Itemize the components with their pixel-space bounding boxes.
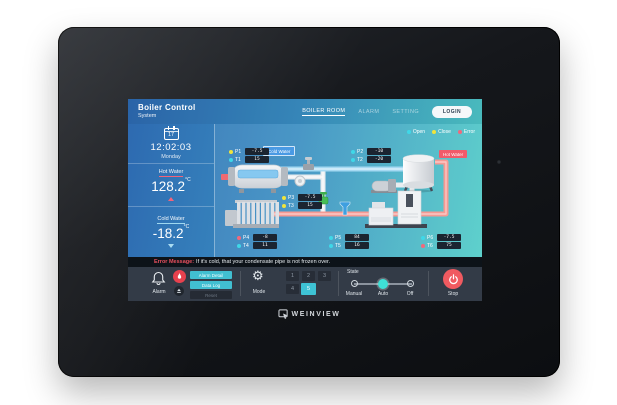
sensor-t1: T1 15	[229, 156, 269, 163]
clock-panel: 17 12:02:03 Monday	[128, 124, 214, 164]
sensor-t6: T6 75	[421, 242, 461, 249]
status-dot	[237, 236, 241, 240]
error-message-bar: Error Message: If it's cold, that your c…	[128, 257, 482, 267]
status-dot	[329, 244, 333, 248]
nav: BOILER ROOM ALARM SETTING LOGIN	[302, 106, 472, 118]
sensor-p4: P4 -8	[237, 234, 277, 241]
sensor-t4: T4 11	[237, 242, 277, 249]
mode-button-4[interactable]: 4	[286, 284, 299, 294]
sidebar: 17 12:02:03 Monday Hot Water 128.2°C Col…	[128, 124, 214, 257]
alarm-detail-button[interactable]: Alarm Detail	[190, 271, 232, 279]
brand-logo: WEINVIEW	[58, 309, 560, 319]
state-knob-manual[interactable]	[351, 280, 358, 287]
page: Boiler Control System BOILER ROOM ALARM …	[0, 0, 617, 405]
mode-button-3[interactable]: 3	[318, 271, 331, 281]
sensor-value: 16	[345, 242, 369, 249]
hmi-panel-device: Boiler Control System BOILER ROOM ALARM …	[58, 27, 560, 377]
heat-exchanger	[221, 165, 288, 193]
sensor-value: -7.5	[437, 234, 461, 241]
state-option-auto[interactable]: Auto	[374, 291, 392, 297]
alarm-label: Alarm	[145, 289, 173, 295]
fire-alarm-button[interactable]	[173, 270, 186, 283]
sensor-t2: T2 -20	[351, 156, 391, 163]
top-bar: Boiler Control System BOILER ROOM ALARM …	[128, 99, 482, 124]
cold-water-unit: °C	[184, 224, 190, 230]
sensor-t5: T5 16	[329, 242, 369, 249]
hot-water-panel: Hot Water 128.2°C	[128, 164, 214, 207]
brand-name: WEINVIEW	[292, 311, 341, 318]
divider	[240, 271, 241, 296]
sensor-value: -7.5	[245, 148, 269, 155]
bell-icon	[151, 271, 166, 285]
divider	[338, 271, 339, 296]
page-subtitle: System	[138, 113, 196, 119]
control-bar: Alarm Alarm Detail Data Log Reset	[128, 267, 482, 301]
power-icon	[448, 274, 459, 285]
sensor-value: 15	[298, 202, 322, 209]
open-dot-icon	[407, 130, 411, 134]
state-knob-off[interactable]	[407, 280, 414, 287]
divider	[428, 271, 429, 296]
hot-water-tag: Hot Water	[439, 150, 467, 158]
calendar-icon: 17	[164, 128, 179, 140]
hot-water-unit: °C	[185, 177, 191, 183]
sensor-value: 84	[345, 234, 369, 241]
clock-time: 12:02:03	[151, 142, 192, 153]
flame-icon	[176, 272, 183, 281]
status-dot	[421, 236, 425, 240]
pump-unit	[371, 179, 397, 193]
boiler-diagram: Open Close Error	[214, 124, 482, 257]
status-dot	[351, 158, 355, 162]
status-dot	[421, 244, 425, 248]
legend-error: Error	[458, 129, 475, 135]
hmi-screen: Boiler Control System BOILER ROOM ALARM …	[128, 99, 482, 301]
status-dot	[329, 236, 333, 240]
sensor-value: 15	[245, 156, 269, 163]
camera-dot	[497, 160, 501, 164]
sensor-value: -20	[367, 156, 391, 163]
sensor-p2: P2 -10	[351, 148, 391, 155]
hot-water-label: Hot Water	[159, 169, 184, 177]
stop-button[interactable]	[443, 269, 463, 289]
title-block: Boiler Control System	[138, 104, 196, 119]
login-button[interactable]: LOGIN	[432, 106, 472, 118]
status-legend: Open Close Error	[407, 129, 475, 135]
mode-label: Mode	[248, 289, 270, 295]
tab-boiler-room[interactable]: BOILER ROOM	[302, 108, 345, 116]
user-reset-button[interactable]	[174, 286, 184, 296]
close-dot-icon	[432, 130, 436, 134]
sensor-t3: T3 15	[282, 202, 322, 209]
status-dot	[282, 196, 286, 200]
temp-rising-icon	[168, 197, 174, 201]
legend-close: Close	[432, 129, 451, 135]
cold-water-panel: Cold Water -18.2°C	[128, 207, 214, 257]
mode-button-5[interactable]: 5	[301, 283, 316, 295]
boiler-unit	[225, 200, 279, 228]
reset-button[interactable]: Reset	[190, 291, 232, 299]
error-message: If it's cold, that your condensate pipe …	[196, 259, 330, 265]
grey-valve-icon	[303, 157, 314, 170]
calendar-day: 17	[168, 131, 174, 139]
sensor-p6: P6 -7.5	[421, 234, 461, 241]
sensor-value: 11	[253, 242, 277, 249]
sensor-p3: P3 -7.5	[282, 194, 322, 201]
page-title: Boiler Control	[138, 104, 196, 113]
mode-button-2[interactable]: 2	[302, 271, 315, 281]
state-option-off[interactable]: Off	[403, 291, 417, 297]
clock-weekday: Monday	[161, 154, 181, 160]
state-knob-auto[interactable]	[378, 279, 388, 289]
weinview-logo-icon	[278, 309, 289, 319]
gear-icon: ⚙	[252, 270, 264, 283]
tab-alarm[interactable]: ALARM	[358, 109, 379, 115]
sensor-value: 75	[437, 242, 461, 249]
status-dot	[237, 244, 241, 248]
storage-tank	[403, 155, 434, 193]
cold-water-label: Cold Water	[157, 216, 184, 224]
sensor-value: -8	[253, 234, 277, 241]
sensor-value: -10	[367, 148, 391, 155]
status-dot	[229, 150, 233, 154]
stop-label: Stop	[440, 291, 466, 297]
legend-open: Open	[407, 129, 425, 135]
user-icon	[176, 288, 182, 294]
error-dot-icon	[458, 130, 462, 134]
error-prefix: Error Message:	[154, 259, 194, 265]
status-dot	[282, 204, 286, 208]
data-log-button[interactable]: Data Log	[190, 281, 232, 289]
control-cabinet-small	[369, 202, 393, 225]
state-option-manual[interactable]: Manual	[341, 291, 367, 297]
status-dot	[351, 150, 355, 154]
cold-water-value: -18.2°C	[153, 226, 189, 241]
sensor-value: -7.5	[298, 194, 322, 201]
temp-falling-icon	[168, 244, 174, 248]
control-cabinet-tall	[398, 191, 421, 224]
sensor-p1: P1 -7.5	[229, 148, 269, 155]
tab-setting[interactable]: SETTING	[392, 109, 419, 115]
state-label: State	[347, 269, 369, 275]
sensor-p5: P5 84	[329, 234, 369, 241]
mode-button-1[interactable]: 1	[286, 271, 299, 281]
status-dot	[229, 158, 233, 162]
hot-water-value: 128.2°C	[151, 179, 190, 194]
